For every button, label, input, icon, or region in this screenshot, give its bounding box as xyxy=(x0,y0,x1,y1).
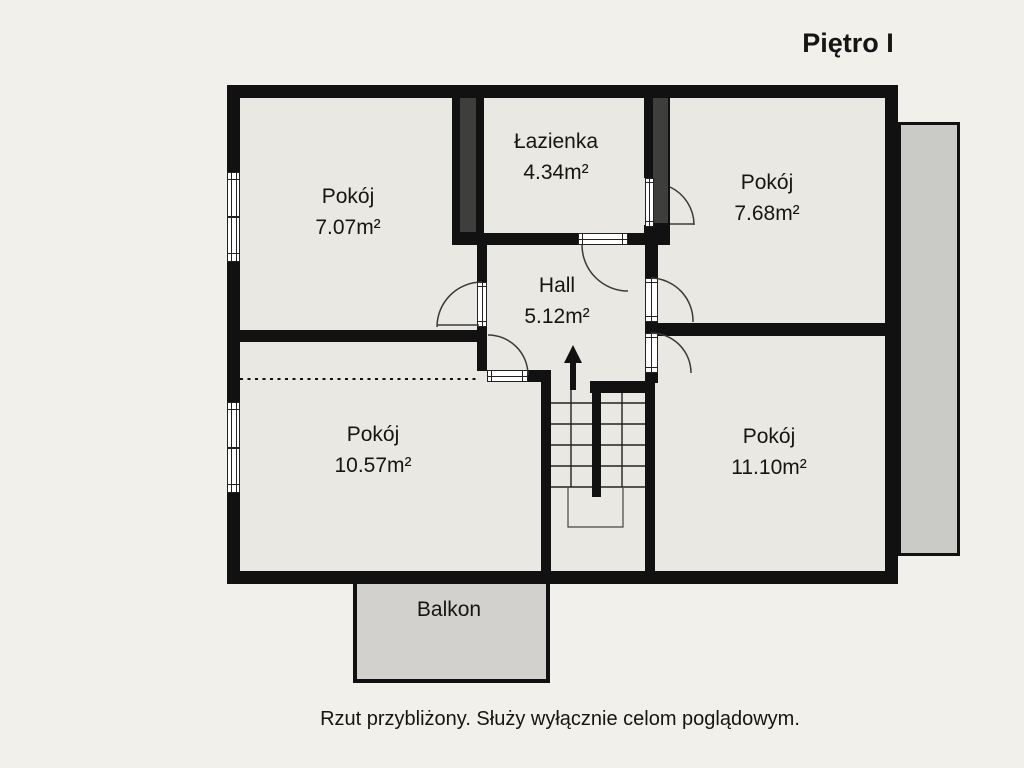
room-area: 7.07m² xyxy=(315,212,380,243)
room-label-4: Pokój 10.57m² xyxy=(334,419,411,481)
room-area: 11.10m² xyxy=(731,452,806,483)
room-label-5: Pokój 11.10m² xyxy=(731,421,806,483)
room-name: Pokój xyxy=(334,419,411,450)
room-name: Łazienka xyxy=(514,126,598,157)
door-arc-room4 xyxy=(488,335,528,375)
stairs-lower-flight-outline xyxy=(568,487,623,527)
door-arc-room5 xyxy=(651,333,691,373)
room-label-hall: Hall 5.12m² xyxy=(524,270,589,332)
door-arc-room2-lower xyxy=(651,278,693,322)
disclaimer-caption: Rzut przybliżony. Służy wyłącznie celom … xyxy=(96,708,1024,731)
room-area: 5.12m² xyxy=(524,301,589,332)
room-area: 4.34m² xyxy=(514,157,598,188)
up-arrow-icon xyxy=(564,345,582,390)
room-label-2: Pokój 7.68m² xyxy=(734,167,799,229)
room-area: 7.68m² xyxy=(734,198,799,229)
room-area: 10.57m² xyxy=(334,450,411,481)
room-name: Pokój xyxy=(734,167,799,198)
floor-plan: Piętro I xyxy=(0,0,1024,768)
room-label-1: Pokój 7.07m² xyxy=(315,181,380,243)
room-label-bathroom: Łazienka 4.34m² xyxy=(514,126,598,188)
door-arc-room2-upper xyxy=(670,187,694,225)
stairs-treads xyxy=(551,382,645,487)
plan-linework xyxy=(0,0,1024,768)
room-name: Pokój xyxy=(731,421,806,452)
room-name: Hall xyxy=(524,270,589,301)
door-arc-room1 xyxy=(437,282,482,327)
balcony-label: Balkon xyxy=(417,598,481,622)
room-name: Pokój xyxy=(315,181,380,212)
